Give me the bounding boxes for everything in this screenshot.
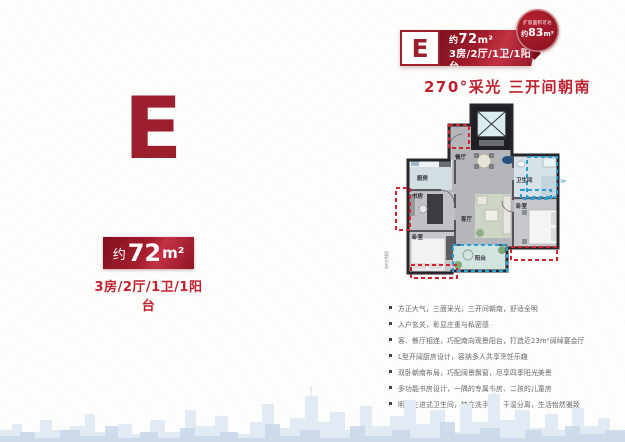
city-skyline xyxy=(0,382,625,442)
dining-chair-icon xyxy=(474,164,479,169)
area-unit: m² xyxy=(162,244,184,262)
feature-item: 双卧朝南布局，巧配阔景飘窗，尽享四季阳光美景 xyxy=(389,367,609,377)
floorplan-caption: 面积示意 xyxy=(384,251,389,270)
area-approx: 约 xyxy=(113,244,126,263)
room-label-dining: 餐厅 xyxy=(454,153,467,161)
dining-chair-icon xyxy=(489,164,494,169)
plant-icon xyxy=(476,229,484,237)
room-label-balcony: 阳台 xyxy=(475,254,487,262)
feature-item: 方正大气，三面采光，三开间朝南，舒适全明 xyxy=(389,303,609,313)
nightstand-icon xyxy=(522,210,527,215)
unit-letter-badge: E xyxy=(400,30,440,66)
room-label-living: 客厅 xyxy=(460,215,473,223)
study-desk-icon xyxy=(427,194,443,224)
room-label-study: 书房 xyxy=(412,192,424,200)
dining-table-icon xyxy=(477,154,491,168)
room-label-bathroom: 卫生间 xyxy=(516,176,533,184)
coffee-table-icon xyxy=(485,210,498,221)
plant-icon xyxy=(498,246,506,254)
feature-item: 入户玄关，彰显庄重与私密感 xyxy=(389,319,609,329)
orientation-tagline: 270°采光 三开间朝南 xyxy=(424,76,614,97)
sofa-icon xyxy=(503,196,511,234)
unit-rooms: 3房/2厅/1卫/1阳台 xyxy=(449,48,538,74)
dining-chair-icon xyxy=(489,153,494,158)
room-label-bedroom-right: 卧室 xyxy=(516,202,528,210)
area-box: 约72m² xyxy=(103,237,194,269)
bath-sink-icon xyxy=(543,158,556,167)
armchair-icon xyxy=(477,196,487,205)
elevator-door xyxy=(479,140,504,146)
feature-item: L型开阔厨房设计，容纳多人共享烹饪乐趣 xyxy=(389,351,609,361)
toilet-icon xyxy=(517,161,525,167)
expand-area-bubble: 扩容面积可达 约83m² xyxy=(516,9,559,52)
floorplan-drawing: 厨房 餐厅 卫生间 书房 客厅 卧室 卧室 阳台 面积示意 ≫ xyxy=(383,98,569,290)
dining-chair-icon xyxy=(474,153,479,158)
study-chair-icon xyxy=(419,205,427,213)
room-label-bedroom-left: 卧室 xyxy=(412,233,424,241)
room-label-kitchen: 厨房 xyxy=(417,174,429,182)
bed-pillow-icon xyxy=(551,212,556,225)
shower-icon xyxy=(541,176,557,196)
arrow-icon: ≫ xyxy=(560,178,566,185)
bubble-area: 约83m² xyxy=(521,27,554,40)
nightstand-icon xyxy=(522,239,527,244)
bed-pillow-icon xyxy=(551,228,556,241)
unit-letter-large: E xyxy=(98,86,208,172)
area-number: 72 xyxy=(128,241,161,265)
rooms-line: 3房/2厅/1卫/1阳台 xyxy=(88,276,209,314)
feature-item: 客、餐厅相连，巧配南向观景阳台，打造近23m²阔绰宴会厅 xyxy=(389,335,609,345)
kitchen-sink-icon xyxy=(411,161,419,166)
